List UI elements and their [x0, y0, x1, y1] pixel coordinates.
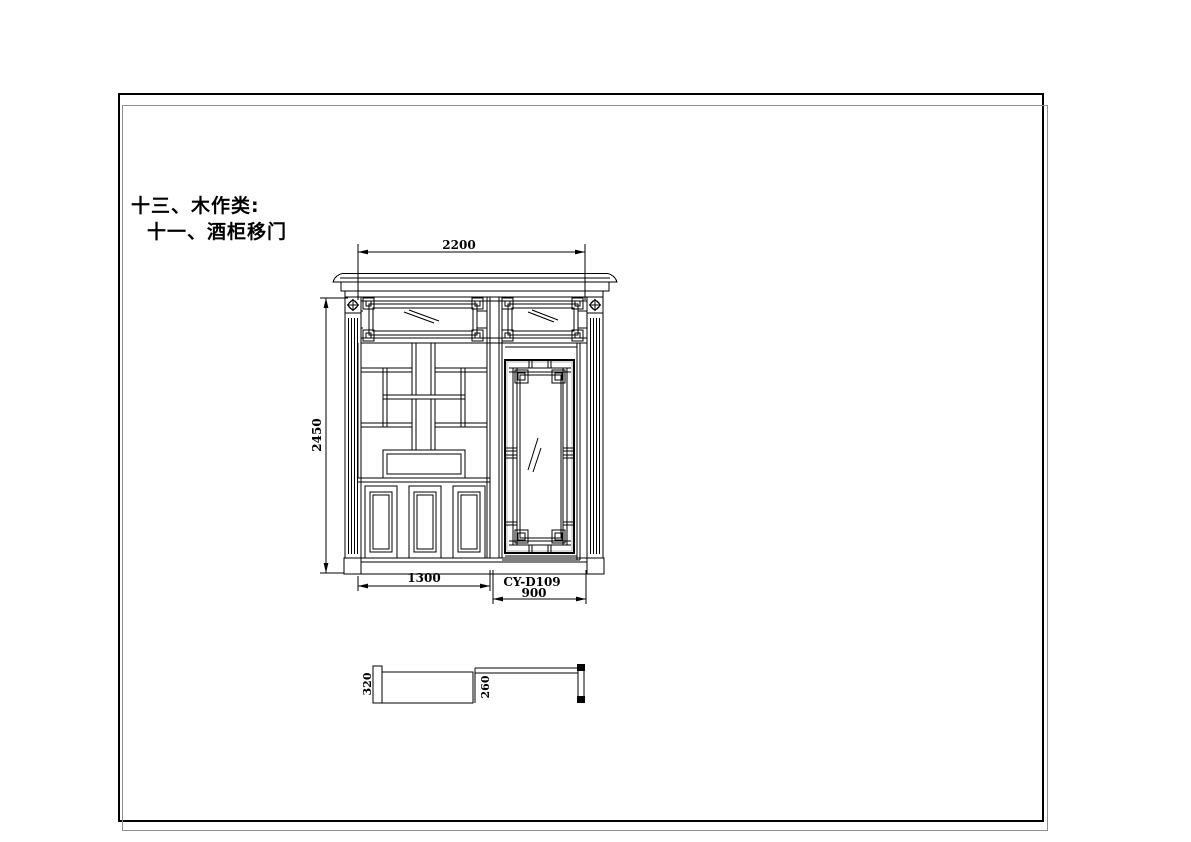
display-shelf-lattice	[358, 343, 490, 482]
elevation-view: 2200 2450 1300 CY-D109 900	[310, 238, 617, 604]
sliding-door	[502, 343, 580, 560]
door-glass	[520, 375, 561, 538]
cabinet-door-panel	[453, 486, 485, 558]
dentil-band	[341, 282, 609, 291]
glass-mark	[528, 310, 558, 322]
dim-cabinet-depth-label: 320	[361, 672, 374, 695]
section-right-end-panel	[577, 664, 585, 703]
pilaster-right	[587, 313, 604, 574]
cornice-molding	[333, 274, 617, 298]
cabinet-door-panel	[365, 486, 397, 558]
glass-mark	[528, 438, 541, 472]
cad-drawing: 2200 2450 1300 CY-D109 900	[0, 0, 1191, 842]
section-door-track	[475, 668, 578, 673]
transom-panel-right	[502, 298, 587, 341]
door-slab	[505, 360, 574, 553]
dim-cabinet-width-label: 1300	[407, 571, 440, 585]
dim-overall-height-label: 2450	[310, 418, 324, 451]
dim-overall-width-label: 2200	[442, 238, 475, 252]
glass-mark	[404, 310, 439, 323]
rosette-left-icon	[345, 297, 361, 313]
cad-viewport: 十三、木作类: 十一、酒柜移门	[0, 0, 1191, 842]
base-block-right	[587, 558, 604, 574]
dim-door-width: CY-D109 900	[493, 570, 586, 604]
section-left-end-panel	[373, 666, 382, 703]
dim-door-depth-label: 260	[479, 675, 492, 698]
section-view: 320 260	[361, 664, 585, 703]
dim-door-width-label: 900	[521, 586, 546, 600]
cabinet-door-panel	[409, 486, 441, 558]
section-cabinet-body	[382, 672, 473, 703]
transom-panel-left	[361, 298, 487, 341]
dim-cabinet-width: 1300	[358, 570, 490, 591]
base-block-left	[344, 558, 361, 574]
rosette-right-icon	[587, 297, 603, 313]
dim-overall-height: 2450	[310, 298, 348, 573]
